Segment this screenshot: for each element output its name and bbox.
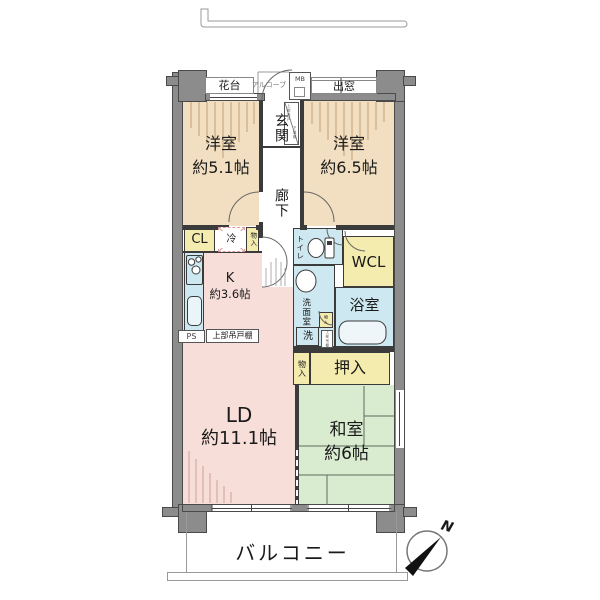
floorplan-canvas: 洋室 約5.1帖 洋室 約6.5帖 玄関 廊下 トイレ WCL 浴室 洗面室 洗… [0,0,600,600]
pillar-top-left [178,70,207,102]
shoe-cabinet-label: 下駄箱 [291,124,298,142]
washer-label: 洗 [300,330,316,343]
meter-box-label: MB [289,75,311,84]
storage-top-label: 物入 [247,229,258,250]
storage-mid-label: 物入 [295,356,308,381]
pillar-bottom-right-tab [403,507,417,517]
west2-size-label: 約6.5帖 [304,158,394,178]
washitsu-size-label: 約6帖 [299,444,394,464]
cl-label: CL [184,229,215,250]
window-bottom-left-line [212,508,292,509]
storage-step-label: 物入 [321,313,331,327]
bay-window-label: 出窓 [311,80,377,93]
upper-outline-shape [201,9,407,27]
ld-size-label: 約11.1帖 [183,428,295,450]
ld-label: LD [183,404,295,426]
ld-washitsu-sliding-door [296,450,298,504]
refrigerator-label: 冷 [218,231,245,248]
flower-stand-label: 花台 [205,79,254,92]
hallway-label: 廊下 [272,182,290,224]
pipe-space-label: PS [178,331,205,342]
room-ld-join [262,287,295,347]
wall-left [172,72,183,510]
alcove-label: アルコーブ [249,80,289,90]
pillar-top-left-tab [166,76,179,86]
bath-upper-shelf-label: 上部吊棚 [323,331,331,347]
toilet-label: トイレ [295,233,305,262]
shoe-cabinet-upper-label: 上部吊戸 [285,104,292,122]
balcony-label: バルコニー [225,540,360,566]
washroom-label: 洗面室 [300,293,311,331]
window-top-left-line [210,97,257,98]
kitchen-size-label: 約3.6帖 [198,288,262,301]
wetarea-closet-wall [293,347,394,352]
balcony-edge-right [396,512,397,573]
window-bottom-right-line [307,508,391,509]
pillar-bottom-left-tab [162,507,179,517]
pillar-top-right-tab [403,76,416,86]
window-right-wall-line [399,392,400,446]
wall-top-right-seg [303,93,396,101]
upper-cabinet-label: 上部吊戸棚 [206,330,259,342]
compass-icon [405,531,447,576]
west1-size-label: 約5.1帖 [183,158,259,178]
balcony-ledge [167,572,408,581]
meter-box-inner [294,87,305,97]
ldk-door-arc [262,237,287,287]
oshiire-label: 押入 [310,357,390,379]
wcl-label: WCL [343,253,394,271]
bedroom-wall-right-stub [300,225,307,230]
balcony-edge-left [186,512,187,573]
washitsu-label: 和室 [299,420,394,440]
bathroom-label: 浴室 [335,296,394,314]
kitchen-label: K [202,271,258,286]
west1-room-label: 洋室 [183,134,259,154]
bedroom-wall-right [336,225,394,230]
compass-north-label: N [436,517,458,538]
stove-box [186,255,203,285]
west2-room-label: 洋室 [304,134,394,154]
